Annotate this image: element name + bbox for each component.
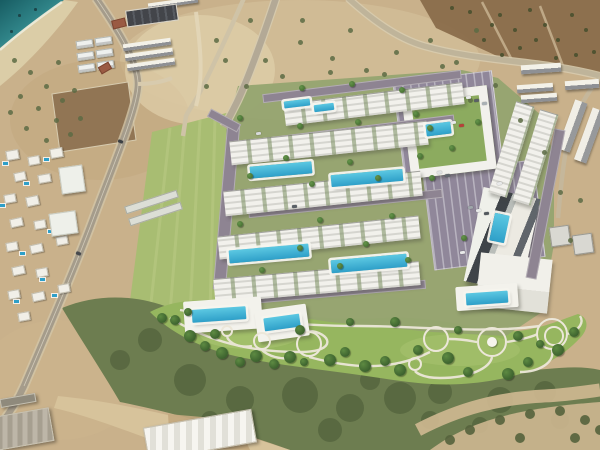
park-plaza [477, 327, 507, 357]
car [437, 171, 442, 175]
tree [247, 173, 253, 179]
villa-building [5, 241, 18, 252]
villa-building [25, 195, 40, 207]
tree [463, 367, 473, 377]
shrub [518, 118, 523, 123]
car [476, 209, 481, 213]
shrub [542, 150, 547, 155]
construction-unit [77, 51, 95, 61]
villa-building [3, 193, 16, 204]
shrub [382, 72, 387, 77]
tree [394, 364, 406, 376]
shrub [348, 28, 353, 33]
villa-building [13, 171, 27, 182]
tree [157, 313, 167, 323]
tree [184, 330, 196, 342]
construction-unit [76, 39, 94, 49]
tree [389, 213, 395, 219]
sea-buoy [34, 8, 37, 11]
field-shrub [528, 8, 532, 12]
field-shrub [584, 28, 588, 32]
tree [552, 344, 564, 356]
villa-pool [3, 162, 8, 165]
tree [309, 181, 315, 187]
tree [300, 358, 308, 366]
field-shrub [498, 13, 502, 17]
tree [569, 327, 579, 337]
tree [413, 111, 419, 117]
field-shrub [570, 13, 574, 17]
tree [536, 340, 544, 348]
coastal-shrub [28, 70, 33, 75]
tree [380, 356, 390, 366]
tree [359, 360, 371, 372]
tree [405, 257, 411, 263]
shrub [440, 64, 445, 69]
shrub [394, 50, 399, 55]
park-plaza [221, 325, 233, 337]
tree [250, 350, 262, 362]
shrub [493, 83, 498, 88]
tree [237, 221, 243, 227]
shrub [204, 84, 209, 89]
tree [513, 331, 523, 341]
villa-pool [52, 294, 57, 297]
shrub [558, 190, 563, 195]
car [468, 206, 473, 210]
tree [413, 345, 423, 355]
villa-large-roof [58, 164, 86, 194]
tree [429, 175, 435, 181]
tree [449, 145, 455, 151]
car [445, 174, 450, 178]
aerial-photo [0, 0, 600, 450]
coastal-shrub [68, 132, 73, 137]
car [292, 205, 297, 209]
car [484, 212, 489, 216]
construction-unit [78, 63, 96, 73]
villa-building [49, 147, 64, 159]
field-shrub [482, 38, 486, 42]
construction-row [521, 63, 562, 75]
car [497, 182, 502, 186]
car [466, 96, 471, 100]
shrub [248, 18, 253, 23]
construction-row [517, 83, 553, 93]
coastal-shrub [60, 98, 65, 103]
villa-building [55, 235, 68, 246]
tree [454, 326, 462, 334]
bush [525, 409, 535, 419]
villa-pool [40, 278, 45, 281]
tree [299, 85, 305, 91]
tree [427, 125, 433, 131]
villa-pool [44, 158, 49, 161]
coastal-shrub [18, 94, 23, 99]
field-shrub [513, 28, 517, 32]
bush [465, 425, 475, 435]
field-shrub [592, 50, 596, 54]
industrial-building [125, 3, 179, 27]
villa-pool [20, 252, 25, 255]
coastal-shrub [8, 110, 13, 115]
bush [580, 415, 590, 425]
shrub [300, 18, 305, 23]
coastal-shrub [56, 60, 61, 65]
tree [295, 325, 305, 335]
field-shrub [500, 53, 504, 57]
park-plaza [423, 326, 449, 352]
shrub [568, 238, 573, 243]
field-shrub [518, 46, 522, 50]
shrub [474, 28, 479, 33]
shrub [214, 38, 219, 43]
tree [184, 308, 192, 316]
villa-building [27, 155, 40, 166]
tree [337, 263, 343, 269]
villa-large-roof [49, 210, 79, 237]
shrub [328, 70, 333, 75]
car [482, 102, 487, 106]
warehouse [143, 409, 257, 450]
shrub [280, 74, 285, 79]
villa-pool [14, 300, 19, 303]
shrub [298, 40, 303, 45]
construction-block [549, 225, 572, 248]
villa-building [5, 149, 20, 161]
construction-unit [95, 36, 113, 46]
tree [317, 217, 323, 223]
bush [570, 433, 580, 443]
bush [445, 435, 455, 445]
villa-building [33, 219, 46, 230]
shrub [263, 58, 268, 63]
tree [297, 245, 303, 251]
shrub [428, 38, 433, 43]
sea-buoy [18, 14, 21, 17]
tree [170, 315, 180, 325]
tree [502, 368, 514, 380]
tree [284, 351, 296, 363]
apartment-row [229, 121, 428, 166]
bush [515, 433, 525, 443]
bush [555, 406, 565, 416]
tree [347, 159, 353, 165]
tree [355, 119, 361, 125]
tree [349, 81, 355, 87]
bush [495, 415, 505, 425]
tree [475, 119, 481, 125]
swimming-pool [250, 161, 313, 178]
shrub [244, 84, 249, 89]
villa-building [31, 291, 46, 303]
field-shrub [574, 53, 578, 57]
scene-objects [0, 0, 600, 450]
warehouse [0, 407, 55, 450]
coastal-shrub [44, 84, 49, 89]
coastal-shrub [44, 138, 49, 143]
shrub [364, 68, 369, 73]
bush [595, 425, 600, 435]
tree [269, 359, 279, 369]
field-shrub [468, 10, 472, 14]
tree [216, 347, 228, 359]
tree [324, 354, 336, 366]
tree [417, 153, 423, 159]
field-shrub [534, 38, 538, 42]
shrub [454, 60, 459, 65]
tree [461, 235, 467, 241]
field-shrub [450, 6, 454, 10]
field-shrub [556, 38, 560, 42]
construction-unit [96, 48, 114, 58]
villa-building [11, 265, 26, 277]
tree [340, 347, 350, 357]
tree [200, 341, 210, 351]
coastal-shrub [54, 118, 59, 123]
construction-block [572, 233, 595, 256]
field-shrub [543, 23, 547, 27]
car [459, 124, 464, 128]
tree [523, 357, 533, 367]
car [76, 251, 82, 256]
coastal-shrub [36, 106, 41, 111]
shrub [223, 58, 228, 63]
tree [346, 318, 354, 326]
villa-building [9, 217, 24, 229]
coastal-shrub [12, 58, 17, 63]
coastal-shrub [72, 88, 77, 93]
sea-buoy [10, 30, 13, 33]
field-shrub [490, 23, 494, 27]
car [256, 132, 261, 136]
villa-building [29, 243, 44, 255]
villa-building [35, 267, 48, 278]
shrub [330, 56, 335, 61]
villa-building [57, 283, 70, 294]
construction-row [565, 79, 600, 90]
field-shrub [554, 56, 558, 60]
car [474, 99, 479, 103]
tree [235, 357, 245, 367]
car [451, 121, 456, 125]
red-roof-house [111, 17, 127, 29]
tree [283, 155, 289, 161]
villa-building [37, 173, 51, 184]
tree [442, 352, 454, 364]
shrub [578, 198, 583, 203]
construction-row [521, 93, 557, 103]
coastal-shrub [78, 116, 83, 121]
car [460, 251, 465, 255]
park-plaza [253, 332, 271, 350]
tree [390, 317, 400, 327]
tree [297, 123, 303, 129]
tree [259, 267, 265, 273]
tree [399, 87, 405, 93]
development-road [207, 109, 241, 133]
villa-building [17, 311, 30, 322]
coastal-shrub [24, 126, 29, 131]
villa-pool [0, 204, 5, 207]
tree [210, 329, 220, 339]
tree [237, 115, 243, 121]
car [118, 139, 124, 144]
park-plaza [408, 357, 422, 371]
tree [375, 175, 381, 181]
villa-pool [24, 182, 29, 185]
warehouse [0, 393, 37, 408]
tree [363, 241, 369, 247]
villa-building [7, 289, 20, 300]
